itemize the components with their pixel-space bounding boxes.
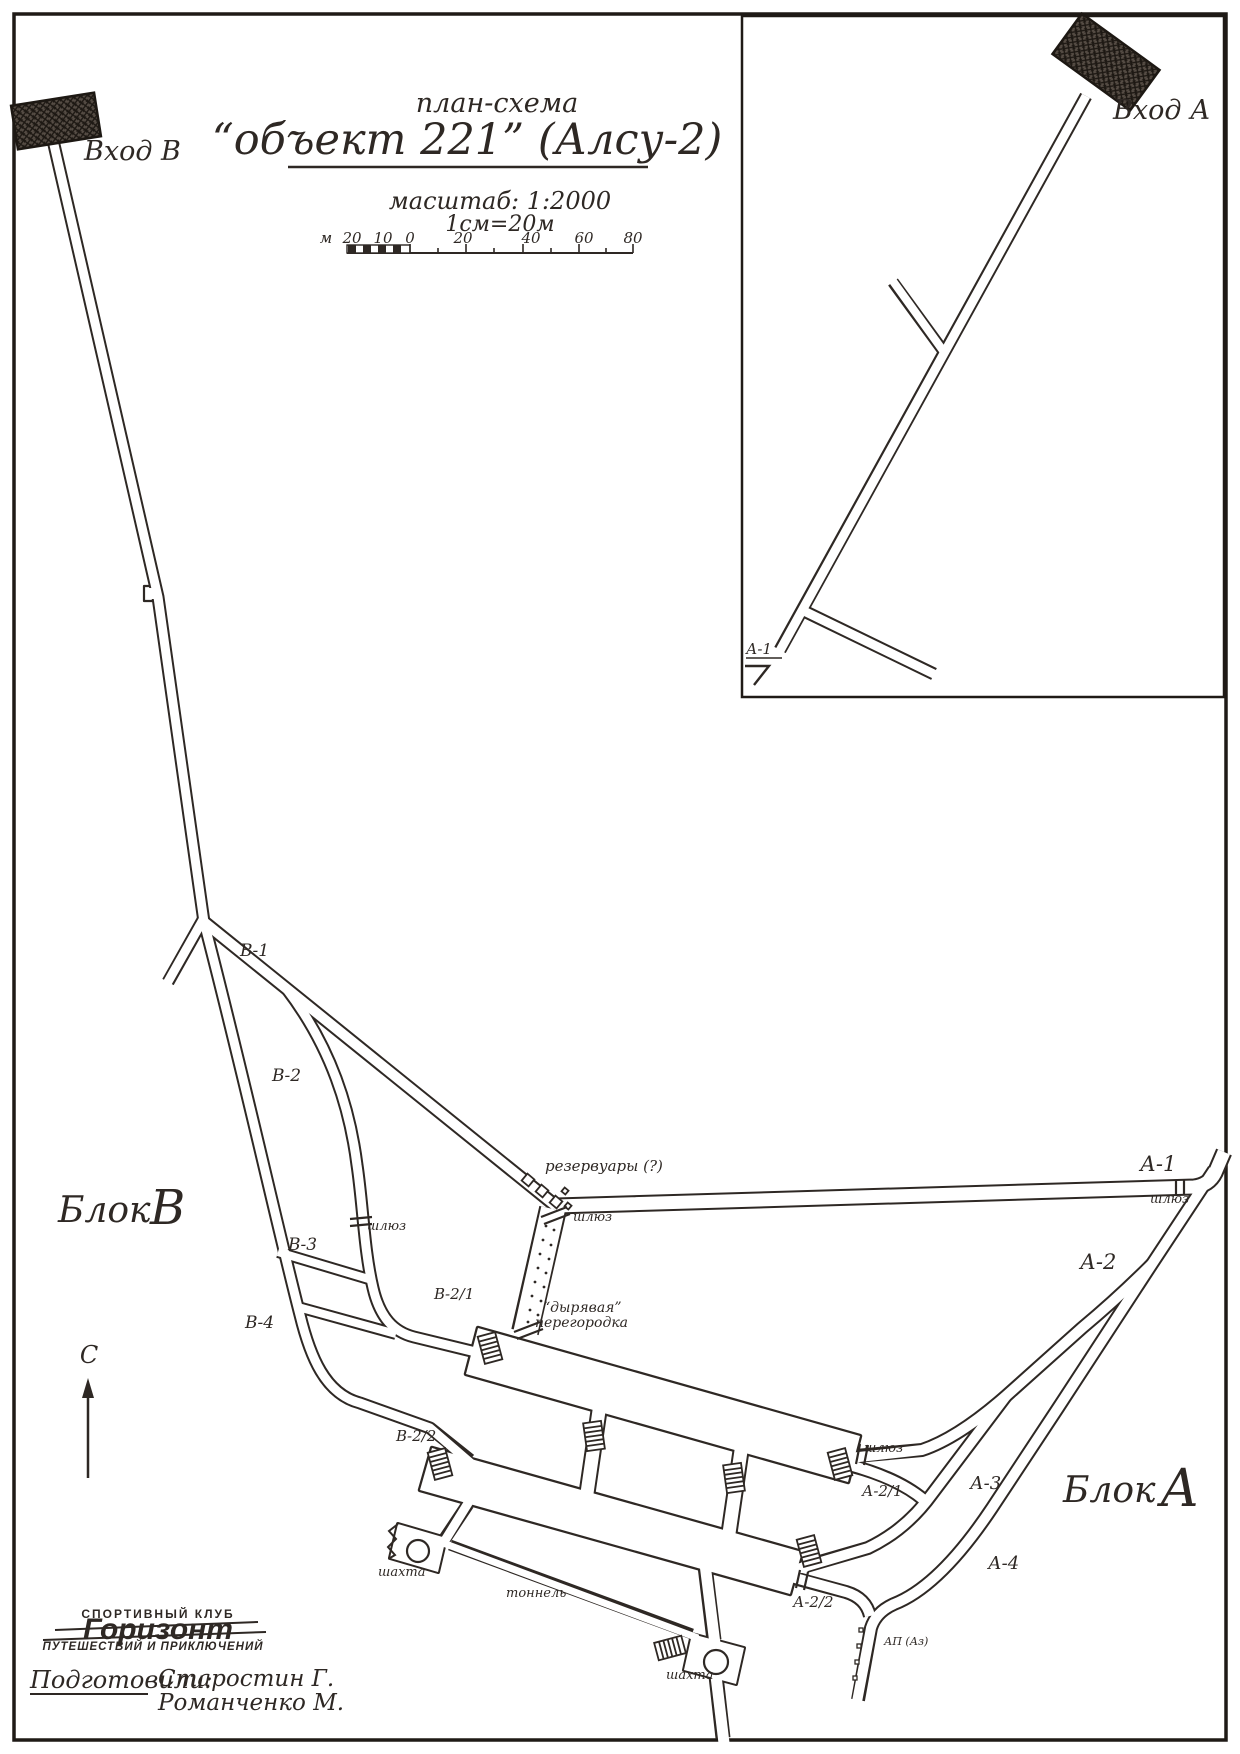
block-a-letter: А — [1156, 1459, 1199, 1519]
stairs-connector-1 — [583, 1421, 605, 1451]
label-shluz-hall1: шлюз — [864, 1441, 903, 1456]
label-a22: А-2/2 — [792, 1593, 834, 1611]
title-block: план-схема “объект 221” (Алсу-2) масштаб… — [212, 88, 722, 237]
airlock-ticks — [350, 1179, 1184, 1590]
label-v4: В-4 — [244, 1313, 274, 1333]
corridor-west — [204, 922, 470, 1460]
scale-text-1: масштаб: 1:2000 — [389, 187, 611, 215]
label-shaft-1: шахта — [378, 1565, 425, 1580]
credits-name-2: Романченко М. — [157, 1690, 344, 1716]
scale-unit: м — [320, 229, 332, 247]
label-a21: А-2/1 — [861, 1482, 903, 1500]
credits-block: Подготовили: Старостин Г. Романченко М. — [29, 1666, 344, 1716]
label-a4: А-4 — [986, 1553, 1019, 1574]
label-v22: В-2/2 — [395, 1427, 436, 1445]
label-shluz-v2: шлюз — [367, 1219, 406, 1234]
label-a1: А-1 — [1138, 1152, 1176, 1176]
north-arrow-head — [82, 1378, 94, 1398]
label-v21: В-2/1 — [433, 1285, 474, 1303]
label-v3: В-3 — [287, 1235, 317, 1255]
label-shluz-junction: шлюз — [573, 1210, 612, 1225]
block-b-letter: В — [149, 1180, 185, 1236]
label-ap: АП (Аз) — [883, 1635, 928, 1648]
stairs-connector-2 — [723, 1463, 745, 1493]
map-title: “объект 221” (Алсу-2) — [212, 115, 722, 165]
label-partition-1: “дырявая” — [543, 1300, 622, 1316]
entrance-b-label: Вход В — [83, 136, 181, 167]
label-v1: В-1 — [239, 941, 269, 961]
shaft-circle-1 — [407, 1540, 429, 1562]
hall-1 — [466, 1328, 860, 1482]
scale-tick-60: 60 — [574, 229, 594, 247]
inset-a1-label: А-1 — [745, 640, 772, 658]
label-v2: В-2 — [271, 1066, 301, 1086]
north-label: С — [80, 1341, 98, 1369]
label-a2: А-2 — [1078, 1250, 1116, 1274]
block-a-word: Блок — [1062, 1470, 1156, 1511]
credits-name-1: Старостин Г. — [158, 1666, 334, 1692]
block-b-word: Блок — [57, 1190, 151, 1231]
stairs-shaft-2 — [654, 1636, 686, 1661]
map-canvas: А-1 Вход А план-схема “объект 221” (Алсу… — [0, 0, 1240, 1754]
label-a3: А-3 — [968, 1473, 1001, 1494]
inset-vhod-a: А-1 Вход А — [742, 14, 1224, 697]
plan-schema-page: А-1 Вход А план-схема “объект 221” (Алсу… — [0, 0, 1240, 1754]
label-shluz-a1: шлюз — [1150, 1192, 1189, 1207]
north-arrow: С — [80, 1341, 98, 1478]
label-tunnel: тоннель — [506, 1586, 566, 1601]
label-partition-2: перегородка — [535, 1315, 628, 1331]
logo-block: СПОРТИВНЫЙ КЛУБ Горизонт ПУТЕШЕСТВИЙ И П… — [42, 1606, 266, 1653]
scale-tick-20: 20 — [452, 229, 473, 247]
entrance-a-label: Вход А — [1112, 95, 1210, 126]
logo-bottom: ПУТЕШЕСТВИЙ И ПРИКЛЮЧЕНИЙ — [42, 1640, 263, 1653]
label-reservoirs: резервуары (?) — [545, 1157, 663, 1175]
corridor-a2 — [856, 1264, 1152, 1456]
label-shaft-2: шахта — [666, 1668, 713, 1683]
